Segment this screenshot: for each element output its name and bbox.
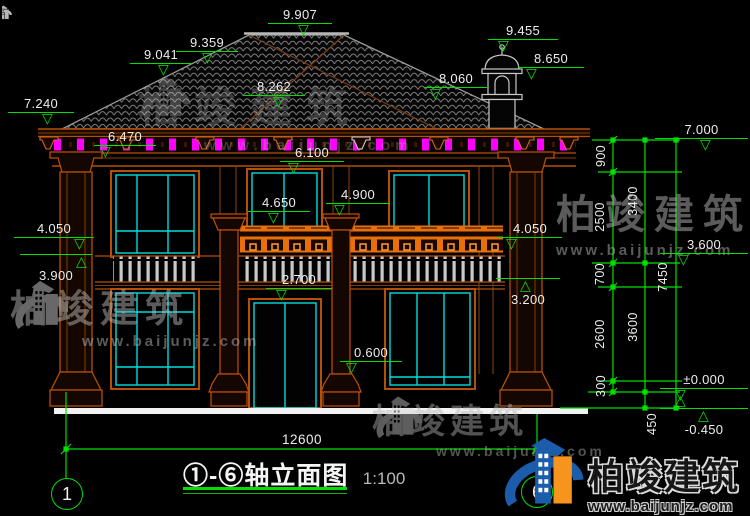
watermark-left: 柏竣建筑 www.baijunjz.com	[10, 278, 259, 350]
dim-450: 450	[645, 402, 659, 446]
level-marker-ground-floor: ±0.000▽△	[660, 373, 748, 405]
dim-300: 300	[594, 364, 608, 408]
level-triangle-icon: ▽	[298, 23, 309, 36]
level-value: 7.240	[8, 97, 74, 112]
level-value: -0.450	[660, 422, 748, 437]
level-marker-rail-left: 4.050▽	[14, 222, 94, 254]
level-marker-eave-soffit: 6.470▽	[94, 130, 156, 162]
level-marker-balcony-rail: 4.650▽	[248, 196, 310, 228]
dim-overall-width: 12600	[272, 432, 332, 447]
drawing-title-text: ①-⑥轴立面图	[183, 462, 348, 490]
elevation-drawing-canvas: 柏竣建筑 www.baijunjz.com 柏竣建筑 www.baijunjz.…	[0, 0, 750, 516]
level-triangle-icon: ▽	[268, 211, 279, 224]
level-triangle-icon: ▽	[273, 95, 284, 108]
level-triangle-icon: ▽	[526, 67, 537, 80]
window-2f-right	[389, 171, 469, 231]
dim-7450: 7450	[656, 255, 670, 299]
level-value: 4.650	[248, 196, 310, 211]
entry-door	[249, 299, 321, 408]
level-marker-head-2f: 6.100▽	[280, 146, 344, 178]
level-value: 3.200	[496, 292, 560, 307]
level-marker-post-capital: 4.900▽	[326, 188, 390, 220]
level-triangle-icon: ▽	[506, 237, 517, 250]
level-triangle-icon: ▽	[42, 112, 53, 125]
window-2f-left	[111, 171, 199, 257]
dim-2500: 2500	[593, 195, 607, 239]
level-triangle-icon: ▽	[202, 51, 213, 64]
level-triangle-icon: ▽	[700, 138, 711, 151]
balcony-railing	[240, 226, 503, 252]
dim-700: 700	[593, 252, 607, 296]
level-marker-roof-valley: 8.262▽	[243, 80, 305, 112]
level-triangle-icon: △	[520, 279, 531, 292]
level-value: ±0.000	[660, 373, 748, 388]
brand-logo-icon	[372, 394, 424, 446]
level-marker-eave-left: 7.240▽	[8, 97, 74, 129]
level-triangle-icon: ▽	[276, 288, 287, 301]
brand-url: www.baijunjz.com	[588, 498, 740, 515]
title-underline-thin	[183, 493, 347, 494]
level-marker-floor-2f: 3.600▽	[660, 238, 748, 270]
axis-number: 1	[62, 484, 72, 504]
level-triangle-icon: ▽	[74, 237, 85, 250]
brand-footer: 柏竣建筑 www.baijunjz.com	[588, 448, 740, 515]
brand-logo-icon	[138, 74, 192, 128]
level-triangle-icon: △	[698, 409, 709, 422]
level-triangle-icon: ▽	[288, 161, 299, 174]
level-marker-slab-bottom: 2.700▽	[266, 273, 332, 305]
brand-name: 柏竣建筑	[588, 456, 740, 497]
brand-logo-icon	[497, 438, 589, 514]
brand-logo-icon	[2, 3, 24, 29]
level-triangle-icon: △	[675, 394, 686, 407]
dim-900: 900	[594, 134, 608, 178]
level-marker-rail-right: 4.050▽	[498, 222, 562, 254]
level-triangle-icon: ▽	[158, 63, 169, 76]
watermark-url: www.baijunjz.com	[82, 333, 259, 350]
axis-bubble-1: 1	[51, 478, 83, 510]
brand-logo-icon	[10, 278, 70, 338]
level-marker-site-ground: △-0.450	[660, 408, 748, 437]
dim-3600: 3600	[626, 305, 640, 349]
dim-3400: 3400	[626, 179, 640, 223]
level-marker-turret-balcony: 8.650▽	[518, 52, 584, 84]
drawing-scale: 1:100	[363, 469, 406, 488]
level-marker-sill-2f: △3.900	[20, 254, 92, 283]
dim-2600: 2600	[593, 312, 607, 356]
level-triangle-icon: ▽	[498, 39, 509, 52]
watermark-text: 柏竣建筑	[556, 193, 750, 237]
level-marker-right-roof: 8.060▽	[424, 72, 488, 104]
title-underline	[183, 487, 347, 490]
level-marker-eave-right: 7.000▽	[655, 123, 748, 155]
level-value: 3.600	[660, 238, 748, 253]
level-marker-beam-soffit: △3.200	[496, 278, 560, 307]
level-marker-left-roof-lower: 9.041▽	[130, 48, 192, 80]
level-triangle-icon: ▽	[346, 361, 357, 374]
level-triangle-icon: △	[76, 255, 87, 268]
level-triangle-icon: ▽	[100, 145, 111, 158]
level-triangle-icon: ▽	[334, 203, 345, 216]
level-value: 3.900	[20, 268, 92, 283]
level-marker-canopy: 0.600▽	[340, 346, 402, 378]
level-triangle-icon: ▽	[678, 253, 689, 266]
level-triangle-icon: ▽	[430, 87, 441, 100]
level-marker-ridge: 9.907▽	[268, 8, 332, 40]
